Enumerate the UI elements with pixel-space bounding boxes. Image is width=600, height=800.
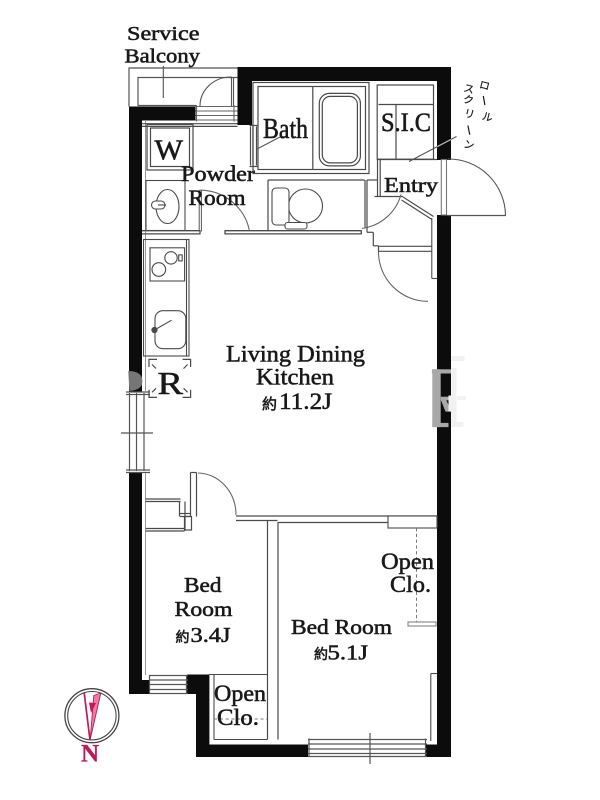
svg-text:Entry: Entry <box>384 173 439 197</box>
svg-text:11.2J: 11.2J <box>279 389 332 414</box>
svg-text:N: N <box>81 741 99 768</box>
svg-text:Bath: Bath <box>263 114 308 145</box>
svg-text:約: 約 <box>262 396 277 413</box>
svg-text:Room: Room <box>175 597 233 621</box>
svg-text:Kitchen: Kitchen <box>256 365 334 391</box>
svg-text:W: W <box>155 136 184 167</box>
svg-text:Room: Room <box>189 185 246 210</box>
svg-text:Clo.: Clo. <box>217 705 259 730</box>
svg-text:Open: Open <box>214 681 267 706</box>
svg-text:3.4J: 3.4J <box>191 623 231 647</box>
svg-text:Balcony: Balcony <box>125 46 201 68</box>
svg-text:Powder: Powder <box>181 161 256 186</box>
svg-text:約: 約 <box>314 647 328 663</box>
svg-text:Service: Service <box>127 23 200 45</box>
svg-text:Clo.: Clo. <box>390 572 431 597</box>
svg-text:R: R <box>158 365 184 401</box>
svg-text:Bed: Bed <box>184 573 222 597</box>
svg-text:Bed Room: Bed Room <box>291 615 392 639</box>
svg-text:約: 約 <box>176 630 190 646</box>
svg-text:S.I.C: S.I.C <box>381 108 431 137</box>
svg-text:5.1J: 5.1J <box>328 641 369 665</box>
svg-text:Open: Open <box>381 549 435 574</box>
